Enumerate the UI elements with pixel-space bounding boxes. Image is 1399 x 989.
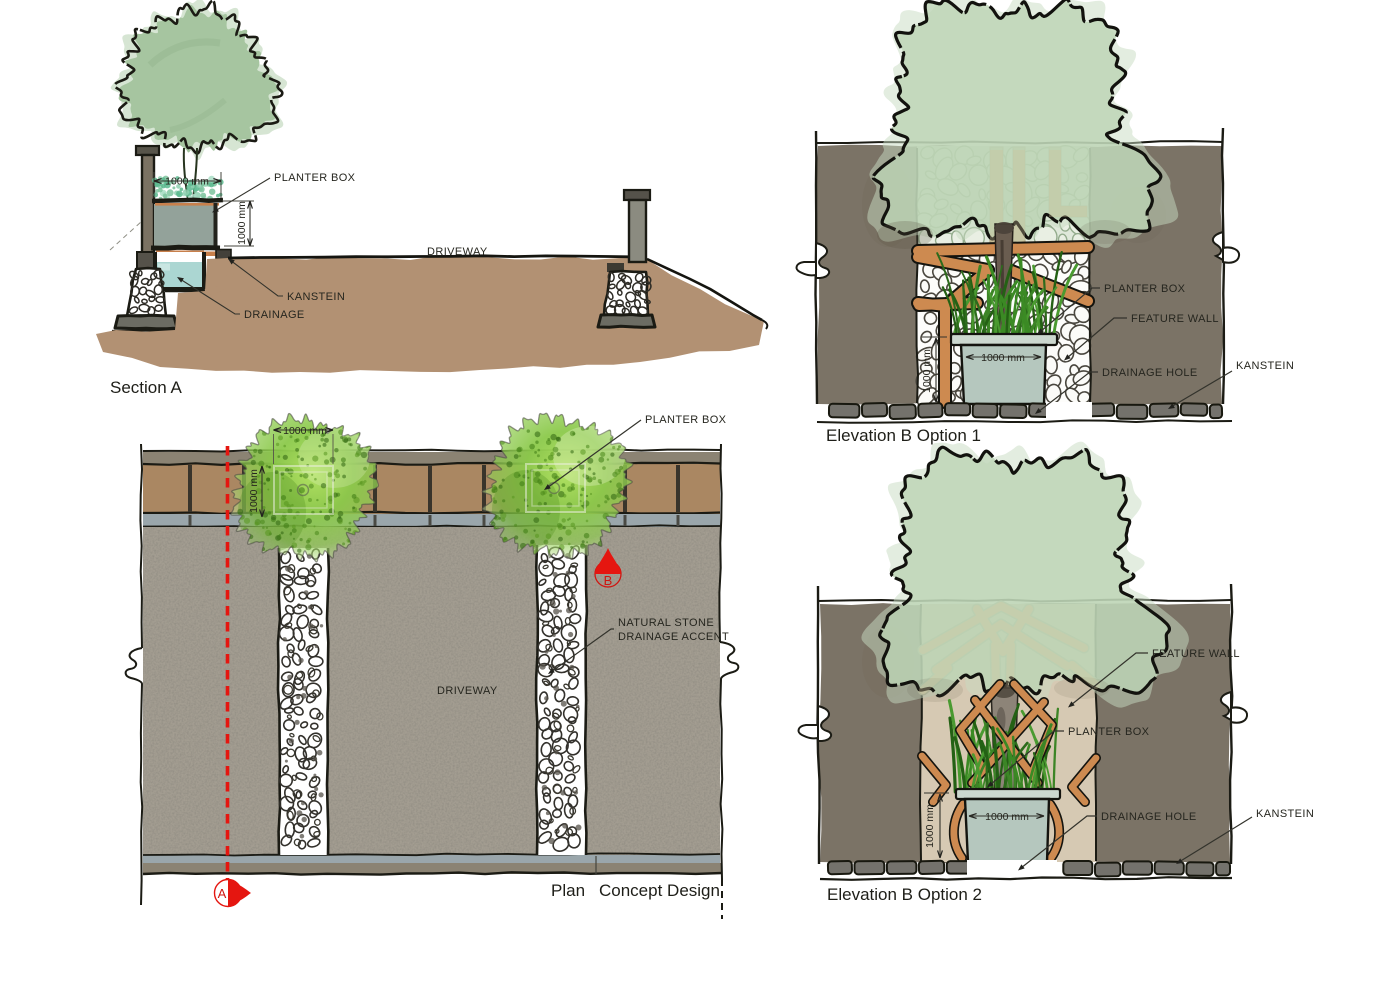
svg-text:PLANTER BOX: PLANTER BOX (1104, 283, 1186, 295)
svg-text:B: B (604, 573, 613, 588)
svg-text:PLANTER BOX: PLANTER BOX (274, 172, 356, 184)
svg-text:FEATURE WALL: FEATURE WALL (1152, 648, 1240, 660)
svg-text:1000 mm: 1000 mm (283, 425, 327, 437)
svg-text:FEATURE WALL: FEATURE WALL (1131, 313, 1219, 325)
svg-text:DRAINAGE HOLE: DRAINAGE HOLE (1102, 367, 1198, 379)
svg-text:DRIVEWAY: DRIVEWAY (437, 685, 498, 697)
svg-text:1000 mm: 1000 mm (981, 352, 1025, 364)
svg-text:1000 mm: 1000 mm (248, 469, 260, 513)
svg-text:NATURAL STONE: NATURAL STONE (618, 617, 714, 629)
svg-text:1000 mm: 1000 mm (165, 176, 209, 188)
svg-text:PLANTER BOX: PLANTER BOX (645, 414, 727, 426)
svg-text:1000 mm: 1000 mm (236, 201, 248, 245)
svg-text:A: A (218, 886, 227, 901)
svg-text:DRAINAGE HOLE: DRAINAGE HOLE (1101, 811, 1197, 823)
svg-text:KANSTEIN: KANSTEIN (287, 291, 345, 303)
svg-text:1000 mm: 1000 mm (985, 811, 1029, 823)
svg-text:KANSTEIN: KANSTEIN (1236, 360, 1294, 372)
svg-text:KANSTEIN: KANSTEIN (1256, 808, 1314, 820)
svg-text:1000 mm: 1000 mm (924, 804, 936, 848)
svg-text:Plan: Plan (551, 881, 585, 900)
svg-text:DRIVEWAY: DRIVEWAY (427, 246, 488, 258)
svg-text:DRAINAGE ACCENT: DRAINAGE ACCENT (618, 631, 729, 643)
svg-text:Elevation B Option 1: Elevation B Option 1 (826, 426, 981, 445)
svg-text:Section A: Section A (110, 378, 182, 397)
svg-text:Concept Design: Concept Design (599, 881, 720, 900)
svg-text:1000 mm: 1000 mm (921, 349, 933, 393)
svg-text:PLANTER BOX: PLANTER BOX (1068, 726, 1150, 738)
svg-text:Elevation B Option 2: Elevation B Option 2 (827, 885, 982, 904)
svg-text:DRAINAGE: DRAINAGE (244, 309, 305, 321)
